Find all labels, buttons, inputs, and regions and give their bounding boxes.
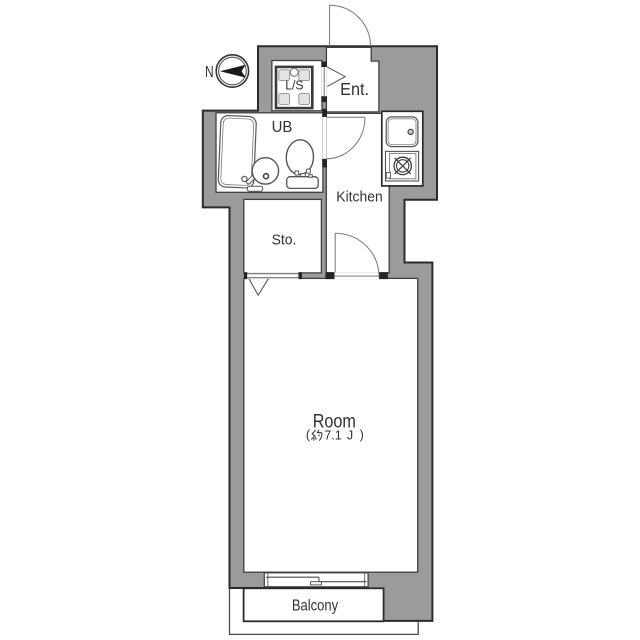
- svg-text:Balcony: Balcony: [292, 597, 339, 614]
- svg-text:): ): [360, 428, 364, 442]
- svg-text:Kitchen: Kitchen: [336, 189, 382, 205]
- svg-text:N: N: [205, 62, 214, 80]
- svg-text:L/S: L/S: [285, 78, 303, 93]
- svg-text:Sto.: Sto.: [272, 232, 297, 249]
- svg-text:Ent.: Ent.: [340, 79, 369, 99]
- svg-text:7.1 J: 7.1 J: [324, 429, 353, 443]
- svg-text:UB: UB: [272, 119, 293, 136]
